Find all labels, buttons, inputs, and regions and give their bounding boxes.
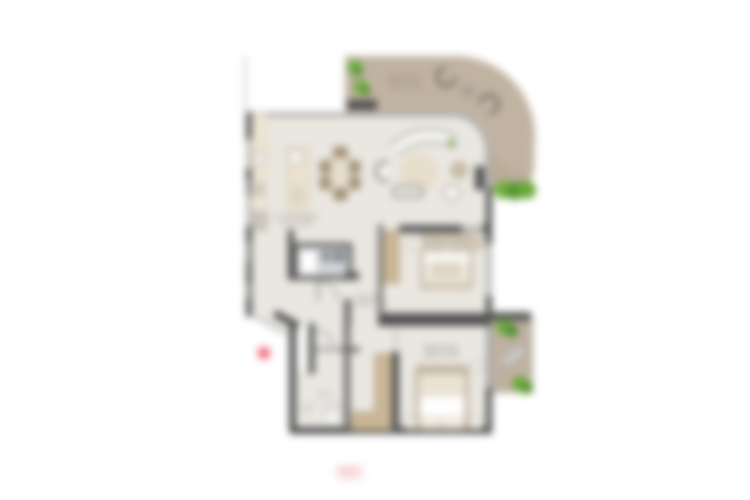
svg-text:KITCHEN/DINING: KITCHEN/DINING	[274, 215, 319, 221]
svg-text:4.2M x 8.0M: 4.2M x 8.0M	[281, 222, 312, 228]
svg-text:BEDROOM: BEDROOM	[424, 345, 458, 352]
svg-text:BATH: BATH	[317, 392, 331, 398]
svg-text:BALCONY: BALCONY	[388, 75, 422, 82]
svg-text:3.6M x 4.2M: 3.6M x 4.2M	[423, 352, 459, 359]
svg-text:5.9M x 2.1M: 5.9M x 2.1M	[388, 84, 421, 90]
